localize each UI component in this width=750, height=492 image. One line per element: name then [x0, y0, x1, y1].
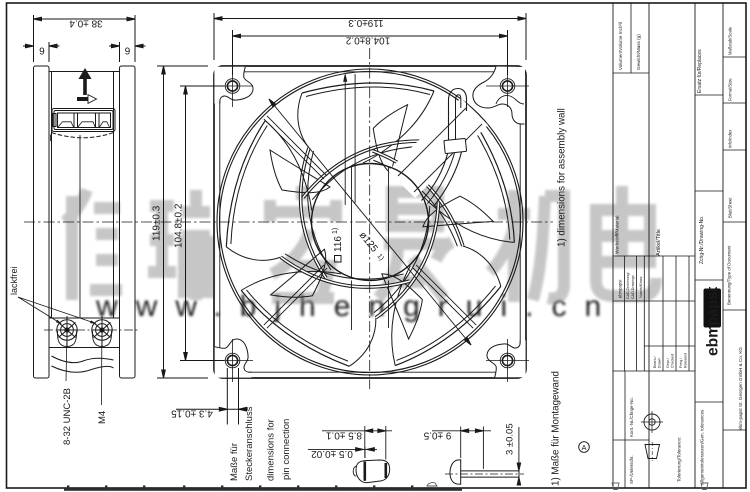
svg-text:Checked: Checked: [671, 354, 675, 368]
svg-text:38 ±0.4: 38 ±0.4: [69, 18, 103, 29]
svg-text:Artikel/Title: Artikel/Title: [656, 229, 662, 256]
svg-text:Drawn: Drawn: [658, 358, 662, 368]
svg-text:Zchg-Nr./Drawing-No.: Zchg-Nr./Drawing-No.: [699, 216, 705, 264]
svg-text:Kont.-Nr./Chnge-No.: Kont.-Nr./Chnge-No.: [629, 397, 634, 437]
svg-text:Maße für: Maße für: [229, 443, 240, 481]
svg-text:9 ±0.5: 9 ±0.5: [423, 429, 451, 440]
svg-text:ebmpapst: ebmpapst: [618, 279, 623, 298]
svg-text:6: 6: [39, 45, 45, 56]
svg-text:Volumen/Volume Inch³/l: Volumen/Volume Inch³/l: [618, 22, 623, 70]
svg-text:Steckeranschluss: Steckeranschluss: [244, 406, 255, 481]
svg-text:M4: M4: [97, 411, 108, 424]
svg-text:pin connection: pin connection: [281, 419, 292, 480]
svg-text:104.8±0.2: 104.8±0.2: [174, 203, 185, 248]
svg-text:SP-/Unterschr.: SP-/Unterschr.: [629, 455, 634, 484]
svg-text:Format/Size: Format/Size: [728, 78, 733, 101]
svg-text:119±0.3: 119±0.3: [348, 17, 384, 28]
svg-text:ebm-papst St. Georgen GmbH & C: ebm-papst St. Georgen GmbH & Co. KG: [738, 347, 743, 430]
svg-text:Info/Index: Info/Index: [728, 129, 733, 148]
svg-text:CAD-Drawings: CAD-Drawings: [631, 275, 635, 299]
svg-text:1) dimensions for assembly wal: 1) dimensions for assembly wall: [557, 108, 568, 247]
svg-text:116: 116: [333, 236, 344, 252]
svg-text:Name/Klass: Name/Klass: [638, 276, 643, 298]
svg-text:Maßstab/Scale: Maßstab/Scale: [728, 26, 733, 55]
svg-text:4.3 ±0.15: 4.3 ±0.15: [171, 408, 213, 419]
svg-text:Tolerierung/Tolerance:: Tolerierung/Tolerance:: [677, 437, 682, 482]
svg-text:CAD-Zeichnung/: CAD-Zeichnung/: [626, 272, 630, 299]
svg-text:Benennung/Type of Document: Benennung/Type of Document: [727, 245, 732, 305]
svg-text:1): 1): [332, 228, 339, 234]
svg-text:1) Maße für Montagewand: 1) Maße für Montagewand: [551, 371, 562, 486]
svg-text:ebm: ebm: [705, 324, 722, 356]
svg-text:3 ±0.05: 3 ±0.05: [505, 423, 516, 455]
svg-text:8-32 UNC-2B: 8-32 UNC-2B: [62, 388, 73, 445]
svg-text:lackfrei: lackfrei: [9, 266, 19, 295]
svg-text:Freig./: Freig./: [679, 358, 683, 368]
svg-text:Allgemeintoleranzen/Gen. toler: Allgemeintoleranzen/Gen. tolerances: [700, 409, 705, 485]
svg-text:Ersatz für/Replaces: Ersatz für/Replaces: [697, 49, 703, 93]
svg-text:Gepr./: Gepr./: [666, 358, 670, 368]
svg-text:0.5 ±0.02: 0.5 ±0.02: [311, 448, 353, 459]
svg-text:Released: Released: [684, 353, 688, 368]
svg-text:Bearb./: Bearb./: [653, 356, 657, 368]
svg-text:8.5 ±0.1: 8.5 ±0.1: [326, 429, 363, 440]
svg-text:Werkstoff/Material: Werkstoff/Material: [615, 216, 621, 254]
svg-text:A: A: [581, 443, 586, 452]
svg-text:Blatt/Sheet: Blatt/Sheet: [728, 197, 733, 218]
svg-text:104.8±0.2: 104.8±0.2: [345, 35, 390, 46]
svg-text:Gewicht/Mass (g): Gewicht/Mass (g): [636, 34, 641, 70]
svg-text:www.bjhengrui.cn: www.bjhengrui.cn: [95, 290, 619, 323]
svg-text:119±0.3: 119±0.3: [152, 205, 163, 241]
svg-text:dimensions for: dimensions for: [266, 419, 277, 481]
svg-text:6: 6: [124, 45, 130, 56]
svg-text:papst: papst: [705, 287, 721, 326]
